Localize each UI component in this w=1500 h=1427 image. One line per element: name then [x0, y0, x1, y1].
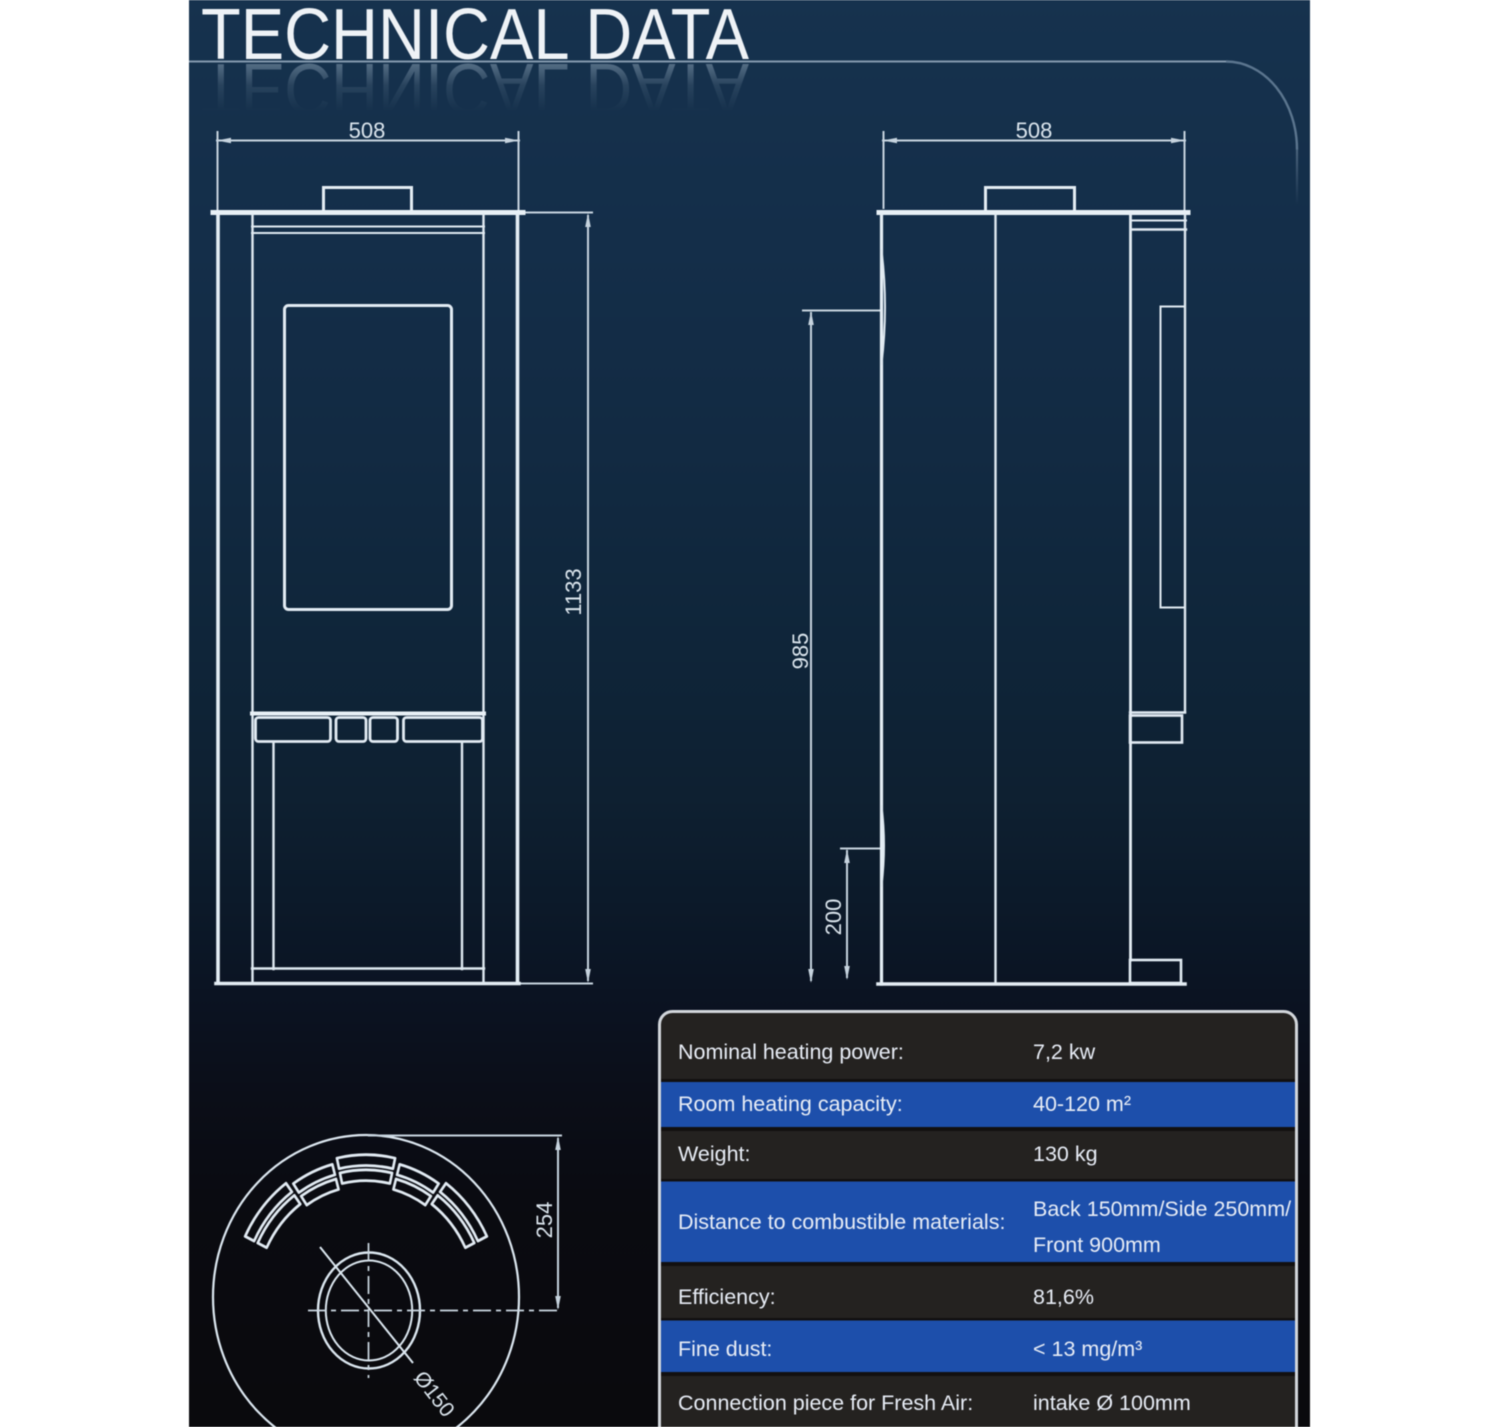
svg-text:Nominal heating power:: Nominal heating power: — [678, 1040, 904, 1064]
svg-text:Front 900mm: Front 900mm — [1033, 1233, 1161, 1257]
svg-text:Fine dust:: Fine dust: — [678, 1337, 772, 1361]
svg-text:Efficiency:: Efficiency: — [678, 1285, 776, 1309]
svg-text:Weight:: Weight: — [678, 1142, 751, 1166]
svg-text:Connection piece for Fresh Air: Connection piece for Fresh Air: — [678, 1391, 973, 1415]
svg-text:200: 200 — [821, 899, 846, 936]
svg-text:508: 508 — [349, 118, 386, 143]
svg-text:254: 254 — [532, 1202, 557, 1239]
svg-text:1133: 1133 — [561, 568, 586, 615]
svg-text:40-120 m²: 40-120 m² — [1033, 1092, 1131, 1116]
svg-text:7,2 kw: 7,2 kw — [1033, 1040, 1096, 1064]
svg-text:130 kg: 130 kg — [1033, 1142, 1098, 1166]
svg-text:TECHNICAL DATA: TECHNICAL DATA — [201, 0, 749, 75]
svg-text:985: 985 — [788, 633, 813, 670]
svg-text:< 13 mg/m³: < 13 mg/m³ — [1033, 1337, 1142, 1361]
svg-text:508: 508 — [1016, 118, 1053, 143]
svg-text:Distance to combustible materi: Distance to combustible materials: — [678, 1210, 1005, 1234]
svg-text:81,6%: 81,6% — [1033, 1285, 1094, 1309]
svg-text:Back 150mm/Side 250mm/: Back 150mm/Side 250mm/ — [1033, 1197, 1291, 1221]
svg-text:Room heating capacity:: Room heating capacity: — [678, 1092, 903, 1116]
svg-text:intake Ø 100mm: intake Ø 100mm — [1033, 1391, 1191, 1415]
